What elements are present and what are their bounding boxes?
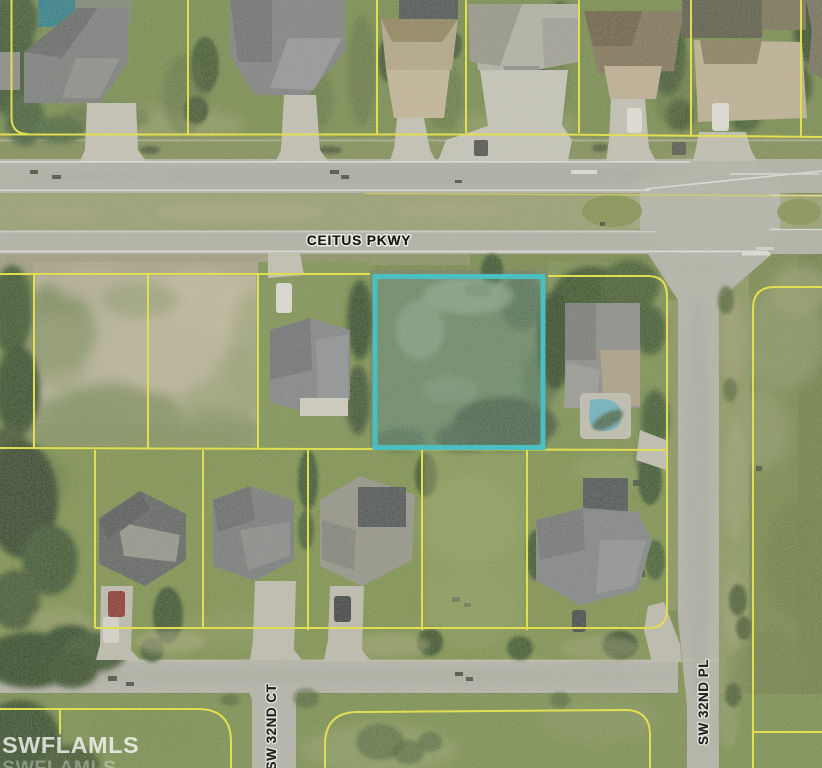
svg-text:SWFLAMLS: SWFLAMLS bbox=[2, 757, 116, 768]
svg-text:CEITUS PKWY: CEITUS PKWY bbox=[307, 233, 412, 248]
svg-text:SWFLAMLS: SWFLAMLS bbox=[2, 732, 139, 758]
svg-text:SW 32ND CT: SW 32ND CT bbox=[264, 683, 279, 768]
svg-text:SW 32ND PL: SW 32ND PL bbox=[696, 659, 711, 745]
